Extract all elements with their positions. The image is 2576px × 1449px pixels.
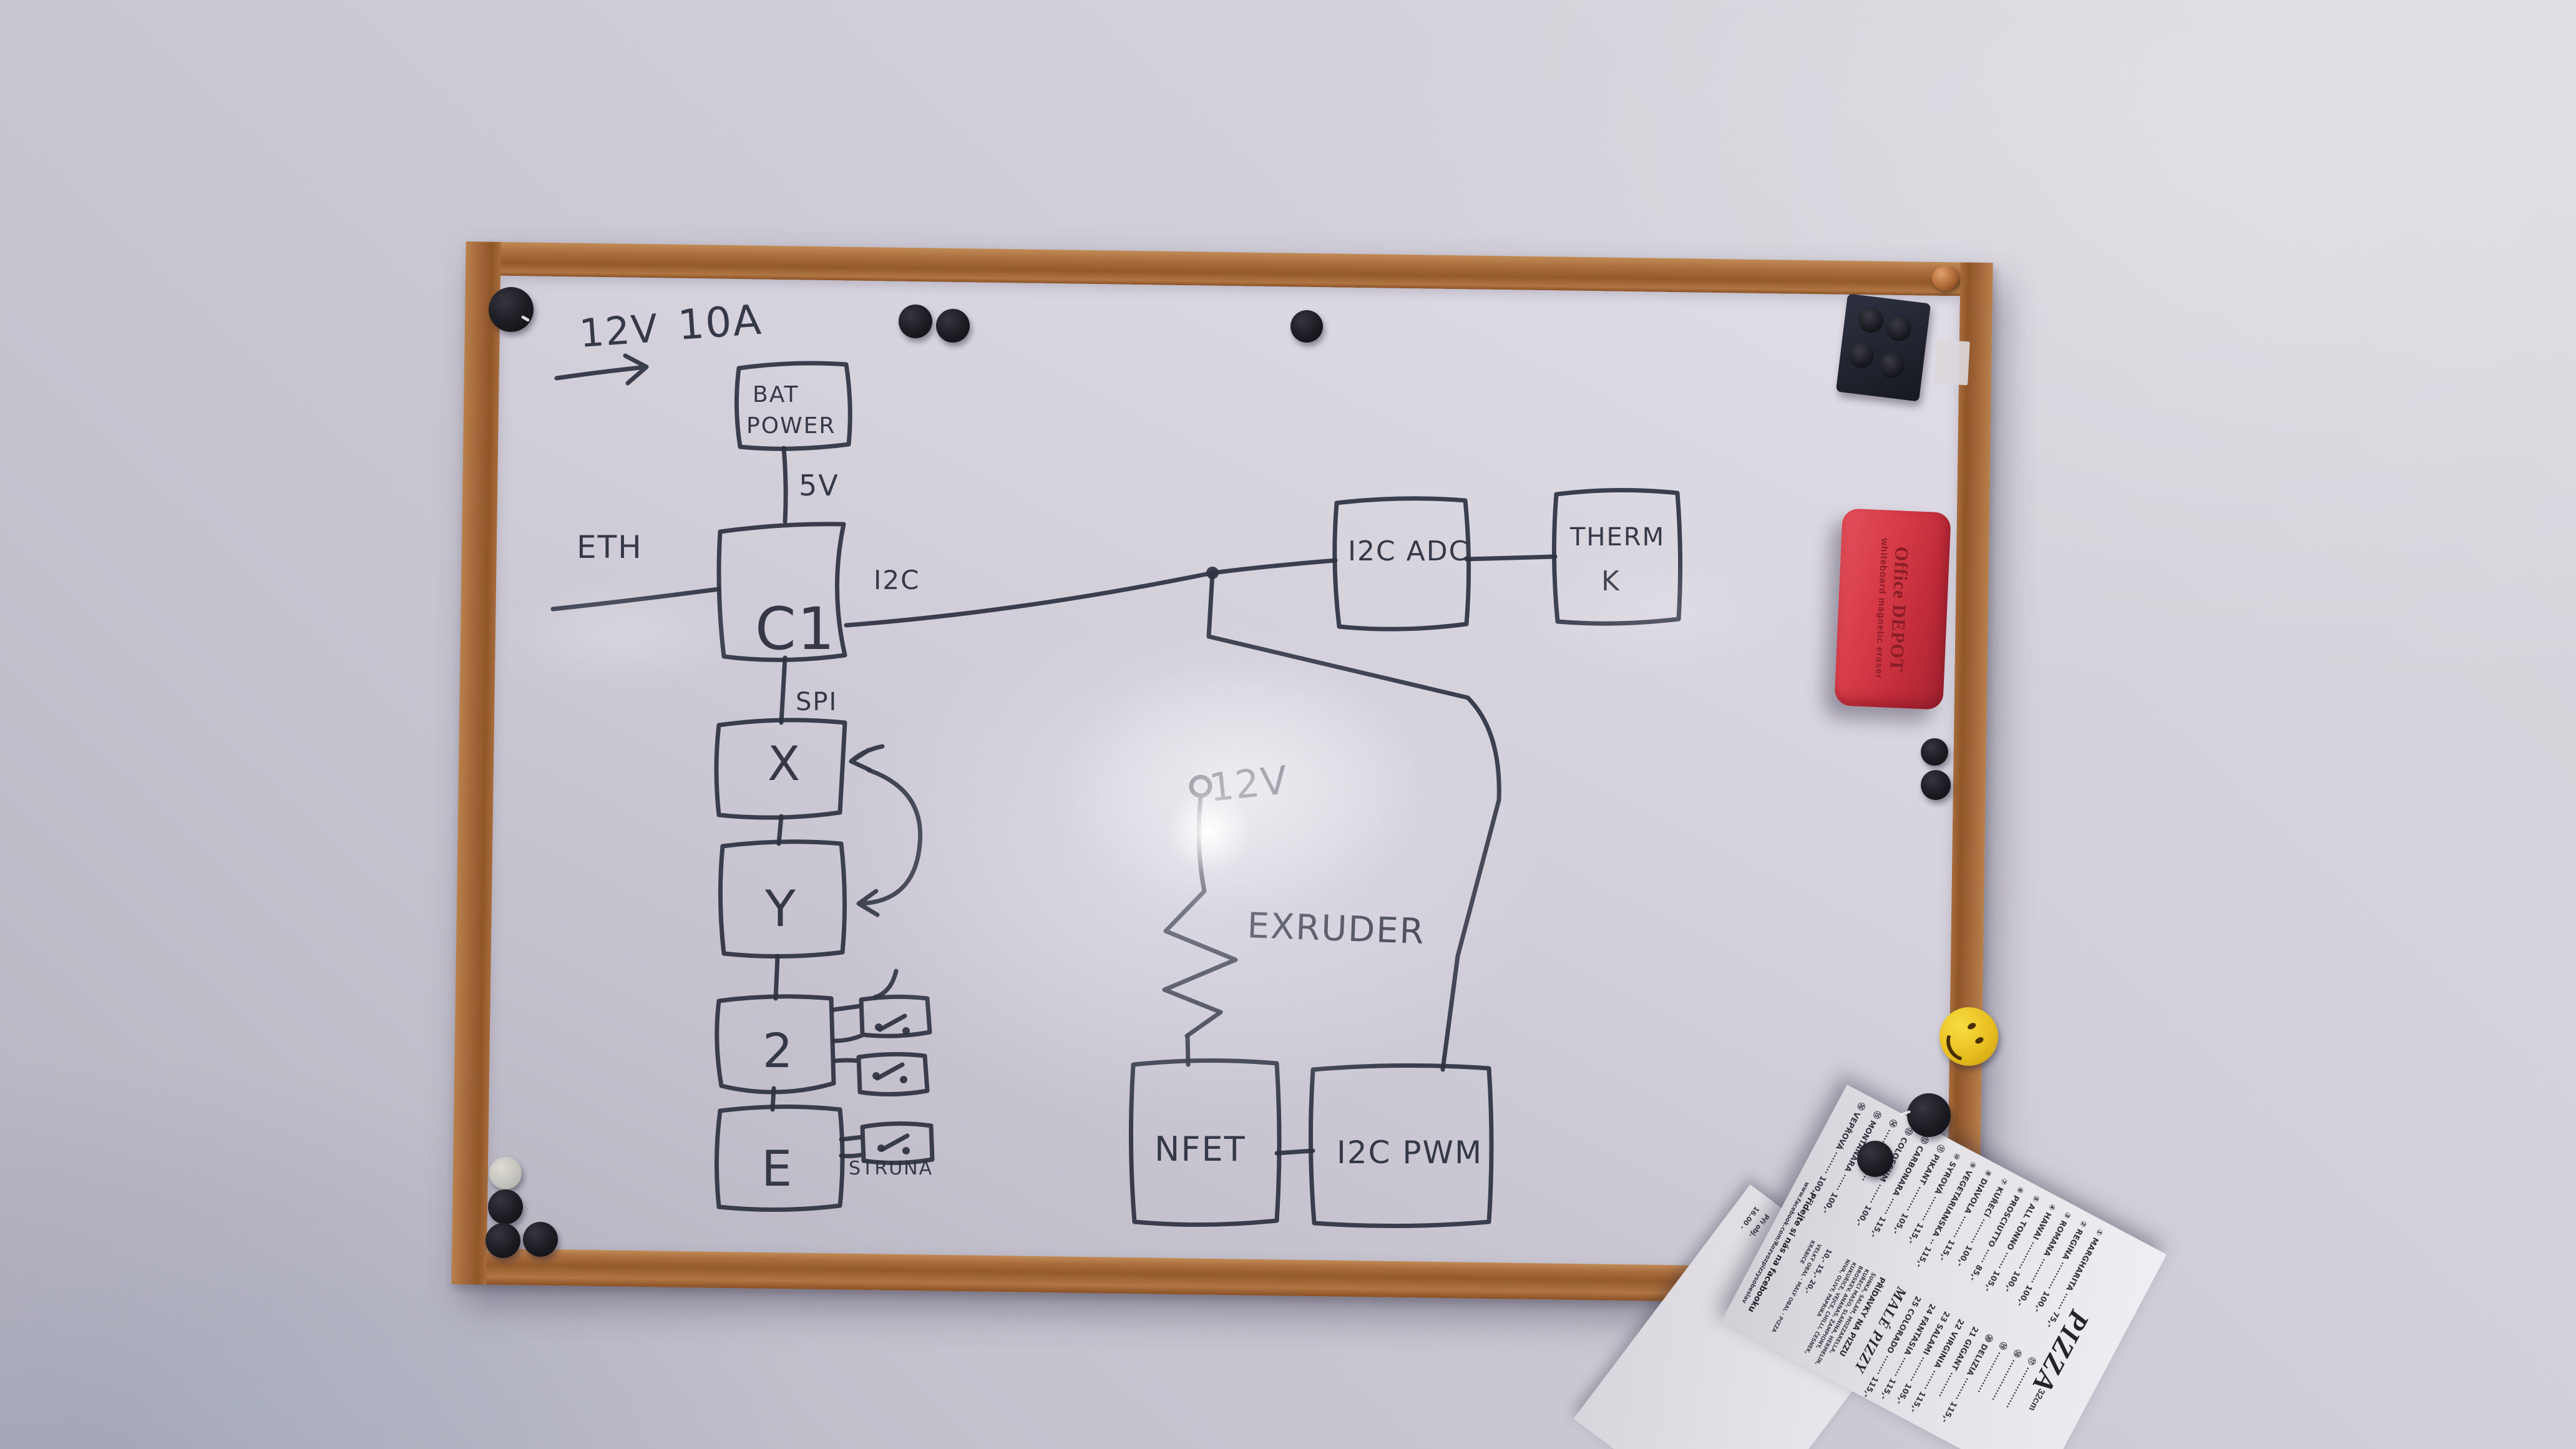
heater-element [1164, 798, 1236, 1036]
label-spi: SPI [796, 688, 837, 716]
line-bus-to-pwm [1209, 573, 1499, 1070]
eraser-brand: Office DEPOT [1885, 539, 1913, 680]
label-therm-k: K [1601, 565, 1621, 597]
heater-terminal [1191, 777, 1210, 796]
diagram: 12V 10A BAT POWER 5V C1 ETH I2C I2C ADC … [0, 0, 2576, 1449]
label-i2c-pwm: I2C PWM [1337, 1134, 1483, 1171]
magnet-bottom-white [489, 1157, 522, 1189]
label-nfet: NFET [1154, 1129, 1246, 1169]
label-supply-amps: 10A [676, 296, 764, 349]
line-eth [553, 589, 719, 609]
line-nfet-pwm [1277, 1151, 1313, 1153]
label-c1: C1 [755, 595, 836, 663]
label-eth: ETH [577, 529, 643, 565]
magnet-top-1 [899, 305, 932, 338]
line-bat-c1 [784, 448, 786, 522]
magnet-menu-2 [1857, 1141, 1893, 1177]
line-x-y [779, 816, 781, 844]
label-e: E [761, 1141, 793, 1198]
line-spi [781, 658, 785, 723]
label-bat: BAT [753, 382, 799, 407]
magnet-tray [1836, 293, 1931, 401]
line-adc-therm [1466, 557, 1555, 559]
smiley-magnet [1939, 1007, 1998, 1066]
tape-piece [1934, 340, 1970, 386]
switch-z1-dot [875, 1023, 882, 1031]
label-therm: THERM [1569, 523, 1665, 552]
magnet-right-1 [1921, 738, 1948, 766]
arrow-into-y [859, 770, 920, 915]
box-therm-k [1554, 490, 1680, 623]
tray-magnet-3 [1848, 342, 1876, 370]
supply-arrow [557, 356, 646, 383]
label-supply-volts: 12V [578, 305, 660, 356]
label-i2c-adc: I2C ADC [1348, 535, 1469, 567]
label-power: POWER [746, 413, 836, 439]
magnet-top-left [489, 287, 534, 332]
switch-z2-dot2 [900, 1076, 907, 1083]
line-y-2 [776, 956, 778, 998]
magnet-bottom-3 [523, 1222, 558, 1257]
switch-z1 [834, 997, 930, 1041]
switch-z2 [835, 1054, 927, 1094]
switch-e-dot2 [902, 1147, 910, 1154]
magnet-top-3 [1290, 310, 1323, 343]
menu-size: 32cm [2026, 1387, 2047, 1413]
arrow-tail [875, 971, 896, 997]
label-x: X [768, 736, 801, 791]
label-z: 2 [763, 1023, 794, 1078]
switch-z1-dot2 [902, 1027, 910, 1035]
label-12v-heater: 12V [1207, 757, 1290, 811]
label-5v: 5V [799, 469, 839, 502]
label-y: Y [764, 880, 797, 938]
magnet-top-2 [936, 309, 970, 343]
eraser-label: Office DEPOT whiteboard magnetic eraser [1873, 538, 1913, 680]
magnet-bottom-1 [488, 1189, 523, 1224]
arrow-into-x [851, 746, 882, 770]
label-extruder: EXRUDER [1247, 905, 1426, 952]
switch-e-dot [877, 1144, 885, 1152]
label-i2c: I2C [874, 565, 920, 595]
label-struna: STRUNA [849, 1158, 933, 1179]
tray-magnet-1 [1857, 306, 1885, 334]
magnet-right-2 [1921, 770, 1951, 800]
push-pin [1932, 266, 1958, 291]
whiteboard-eraser: Office DEPOT whiteboard magnetic eraser [1834, 508, 1951, 710]
magnet-bottom-2 [485, 1223, 520, 1258]
magnet-menu-1 [1907, 1093, 1951, 1137]
tray-magnet-4 [1878, 352, 1906, 380]
tray-magnet-2 [1885, 315, 1913, 343]
switch-z2-dot [872, 1072, 880, 1080]
whiteboard-photo-scene: 12V 10A BAT POWER 5V C1 ETH I2C I2C ADC … [0, 0, 2576, 1449]
